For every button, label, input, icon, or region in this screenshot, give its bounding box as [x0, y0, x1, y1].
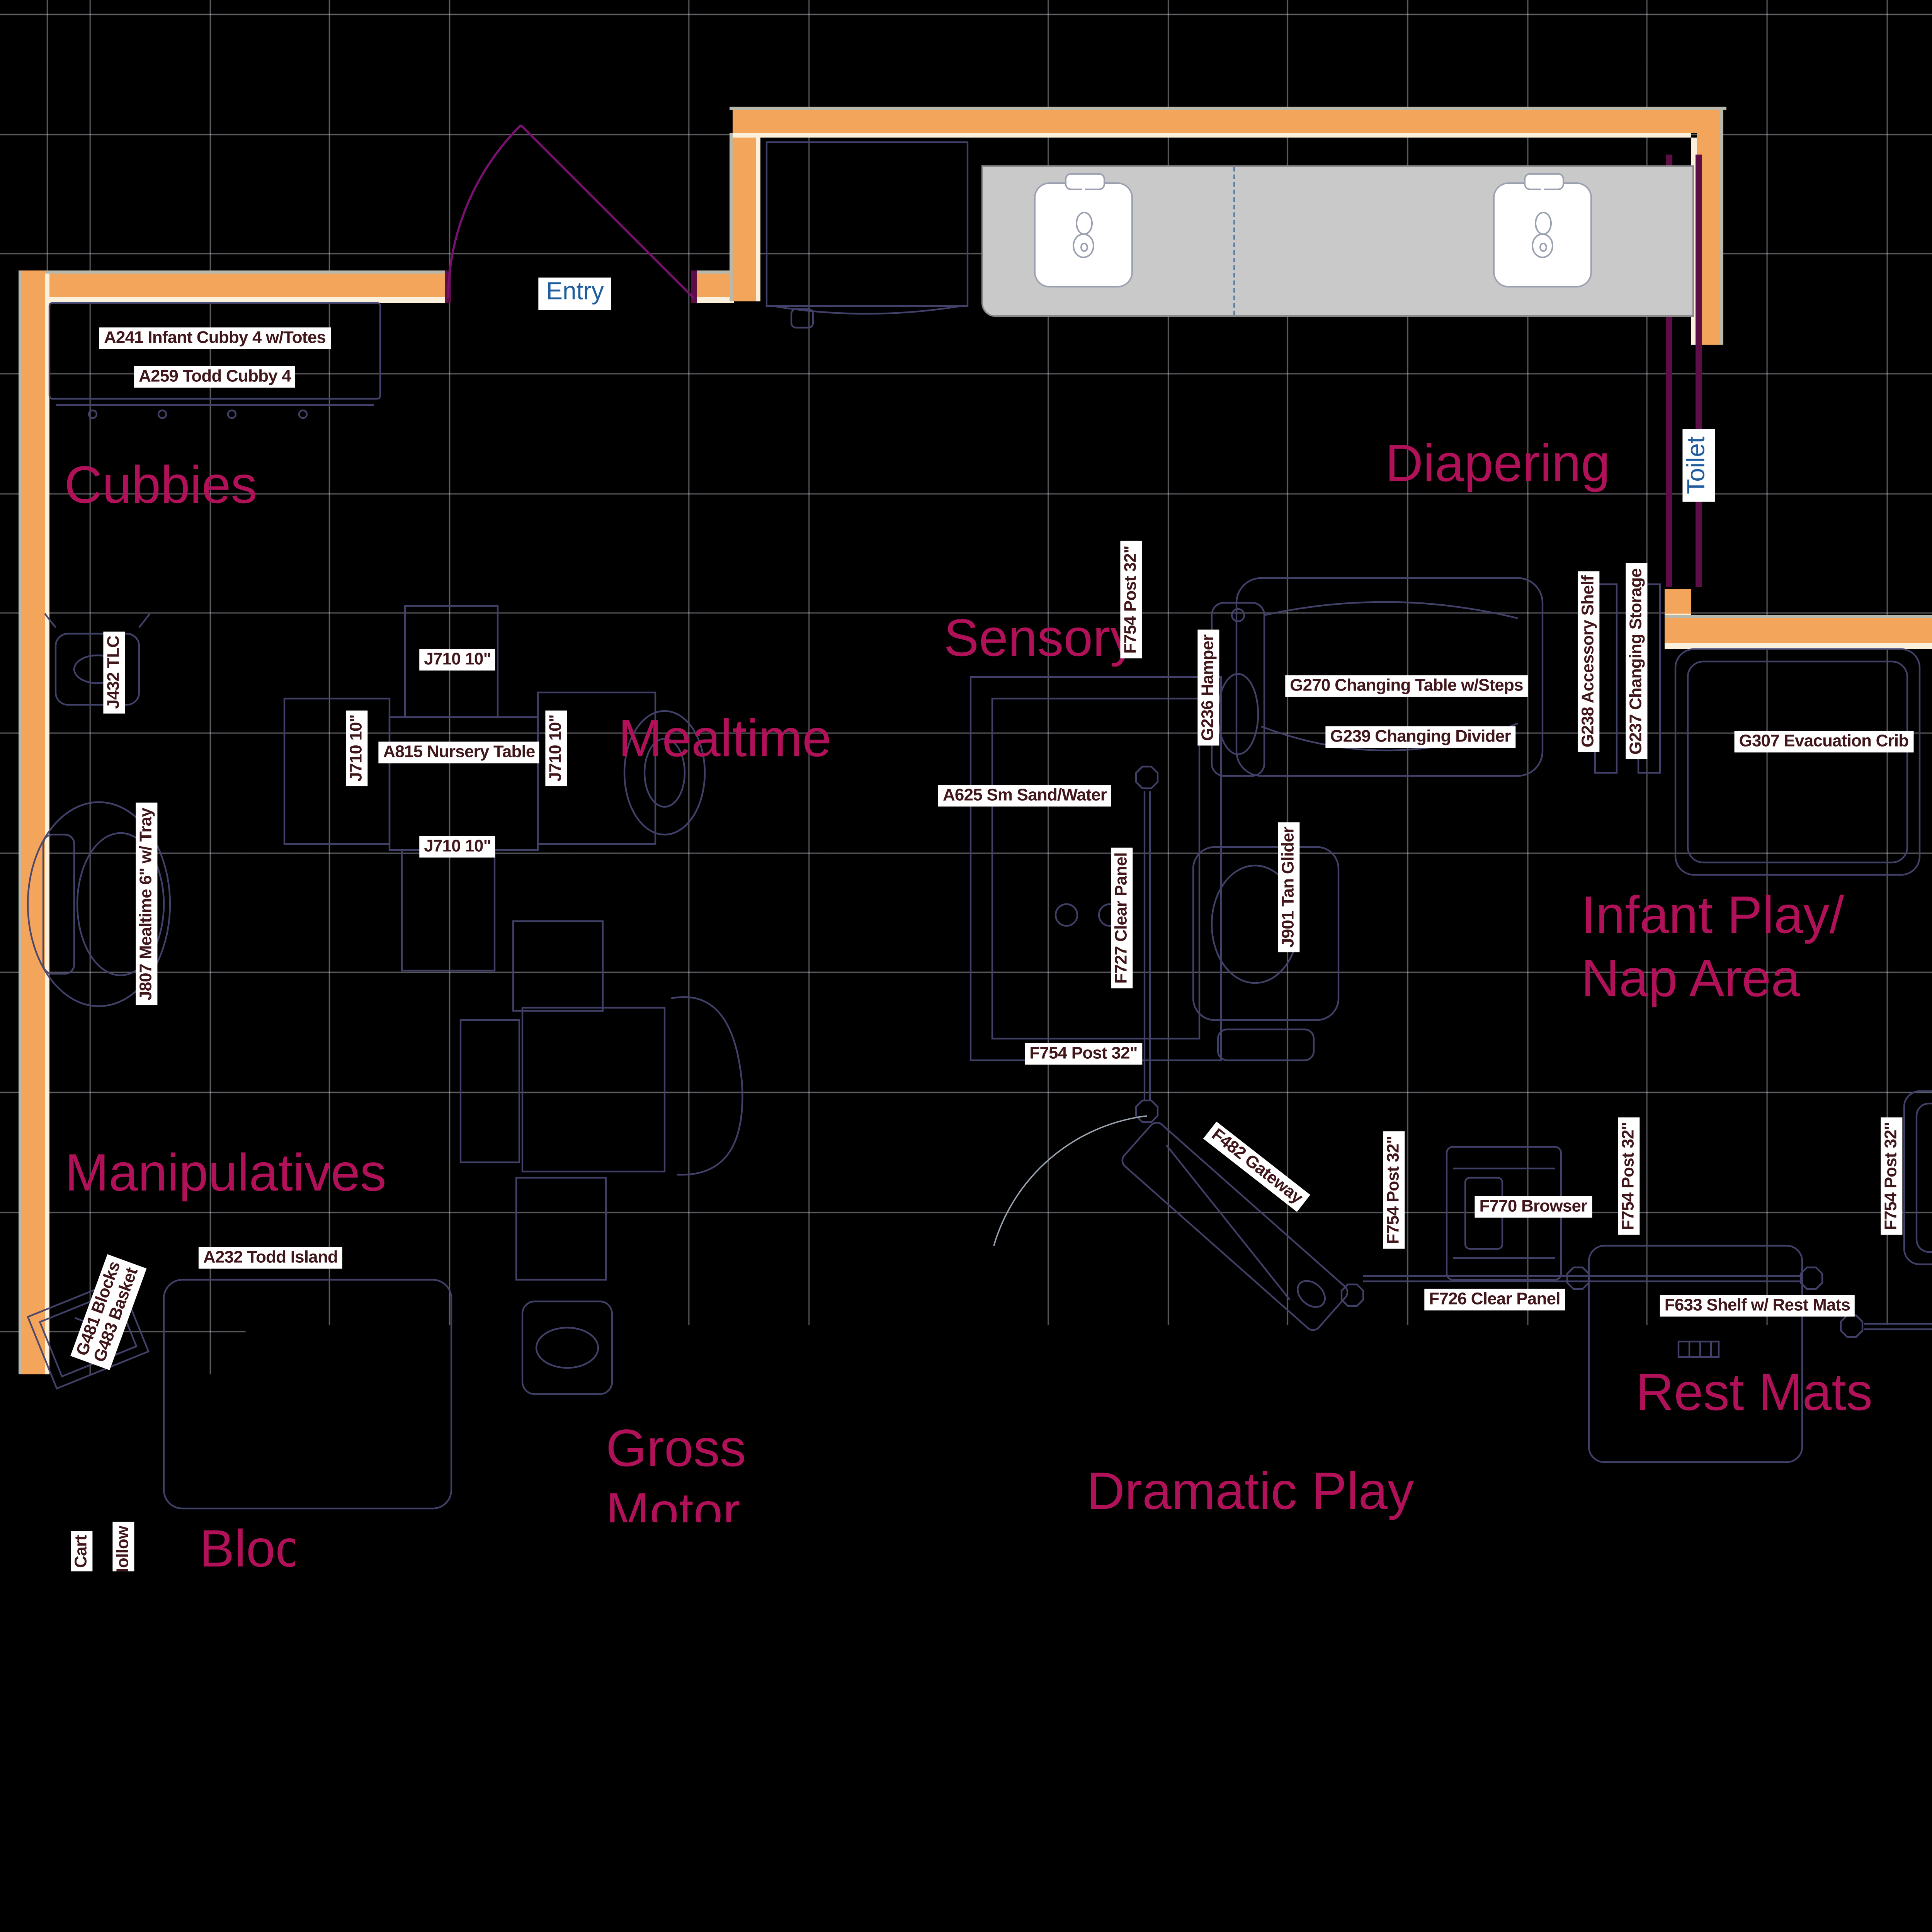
nav-label-layer: EntryToiletExit [0, 0, 1932, 1932]
floor-plan-canvas: CubbiesMealtimeSensoryDiaperingInfant Pl… [0, 0, 1932, 1932]
nav-label-entry: Entry [538, 277, 611, 310]
nav-label-toilet: Toilet [1682, 429, 1714, 502]
